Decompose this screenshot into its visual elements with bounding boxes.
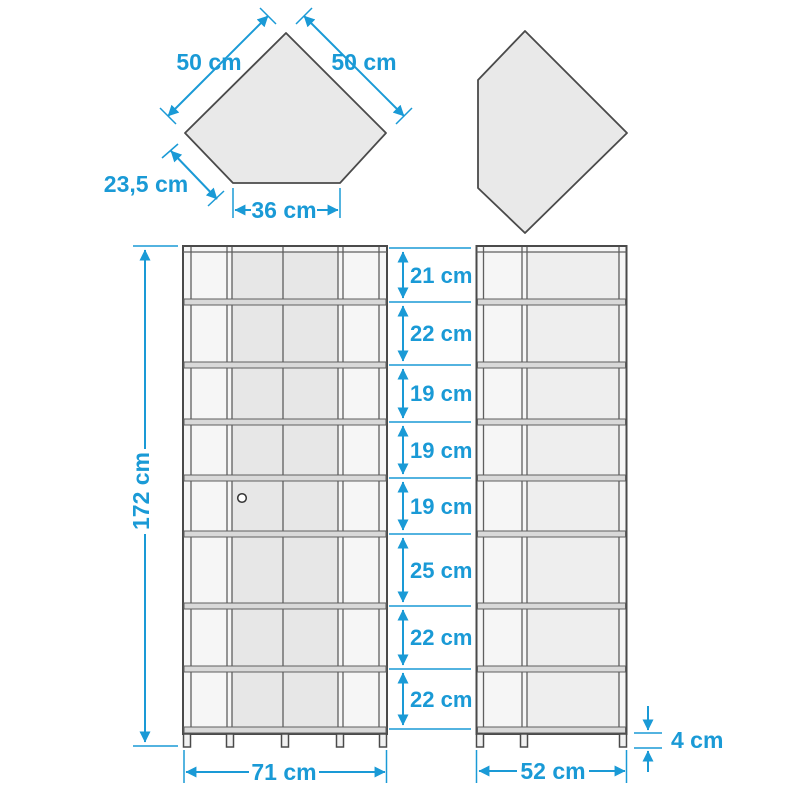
compartment-label-5: 19 cm (410, 494, 472, 519)
diagram-canvas: 50 cm 50 cm 23,5 cm 36 cm (0, 0, 800, 800)
depth-dimension: 52 cm (477, 750, 627, 784)
dim-label-right-edge: 50 cm (331, 49, 396, 75)
compartment-label-2: 22 cm (410, 321, 472, 346)
dim-label-leg-height: 4 cm (671, 727, 723, 753)
dim-label-left-edge: 50 cm (176, 49, 241, 75)
width-dimension: 71 cm (184, 750, 387, 785)
corner-panel-rotated-outline (478, 31, 627, 233)
front-door-panel (232, 252, 338, 728)
dim-label-total-height: 172 cm (128, 452, 154, 530)
compartment-label-8: 22 cm (410, 687, 472, 712)
dim-label-total-width: 71 cm (251, 759, 316, 785)
compartment-label-1: 21 cm (410, 263, 472, 288)
height-dimension: 172 cm (128, 246, 178, 746)
door-knob (238, 494, 247, 503)
top-view-right-shape (478, 31, 627, 233)
dim-label-front-edge: 36 cm (251, 197, 316, 223)
furniture-dimension-diagram: 50 cm 50 cm 23,5 cm 36 cm (0, 0, 800, 800)
compartment-label-4: 19 cm (410, 438, 472, 463)
side-cabinet-legs (477, 734, 627, 747)
dim-label-back-left-edge: 23,5 cm (104, 171, 188, 197)
compartment-label-6: 25 cm (410, 558, 472, 583)
dimension-36: 36 cm (233, 188, 340, 223)
front-view-cabinet (183, 246, 387, 747)
compartment-dimensions: 21 cm 22 cm 19 cm 19 cm 19 cm 25 cm 22 c… (389, 248, 472, 729)
front-cabinet-legs (184, 734, 387, 747)
dim-label-total-depth: 52 cm (520, 758, 585, 784)
leg-height-dimension: 4 cm (634, 706, 723, 772)
side-view-cabinet (477, 246, 627, 747)
compartment-label-7: 22 cm (410, 625, 472, 650)
side-panel (527, 252, 619, 728)
compartment-label-3: 19 cm (410, 381, 472, 406)
